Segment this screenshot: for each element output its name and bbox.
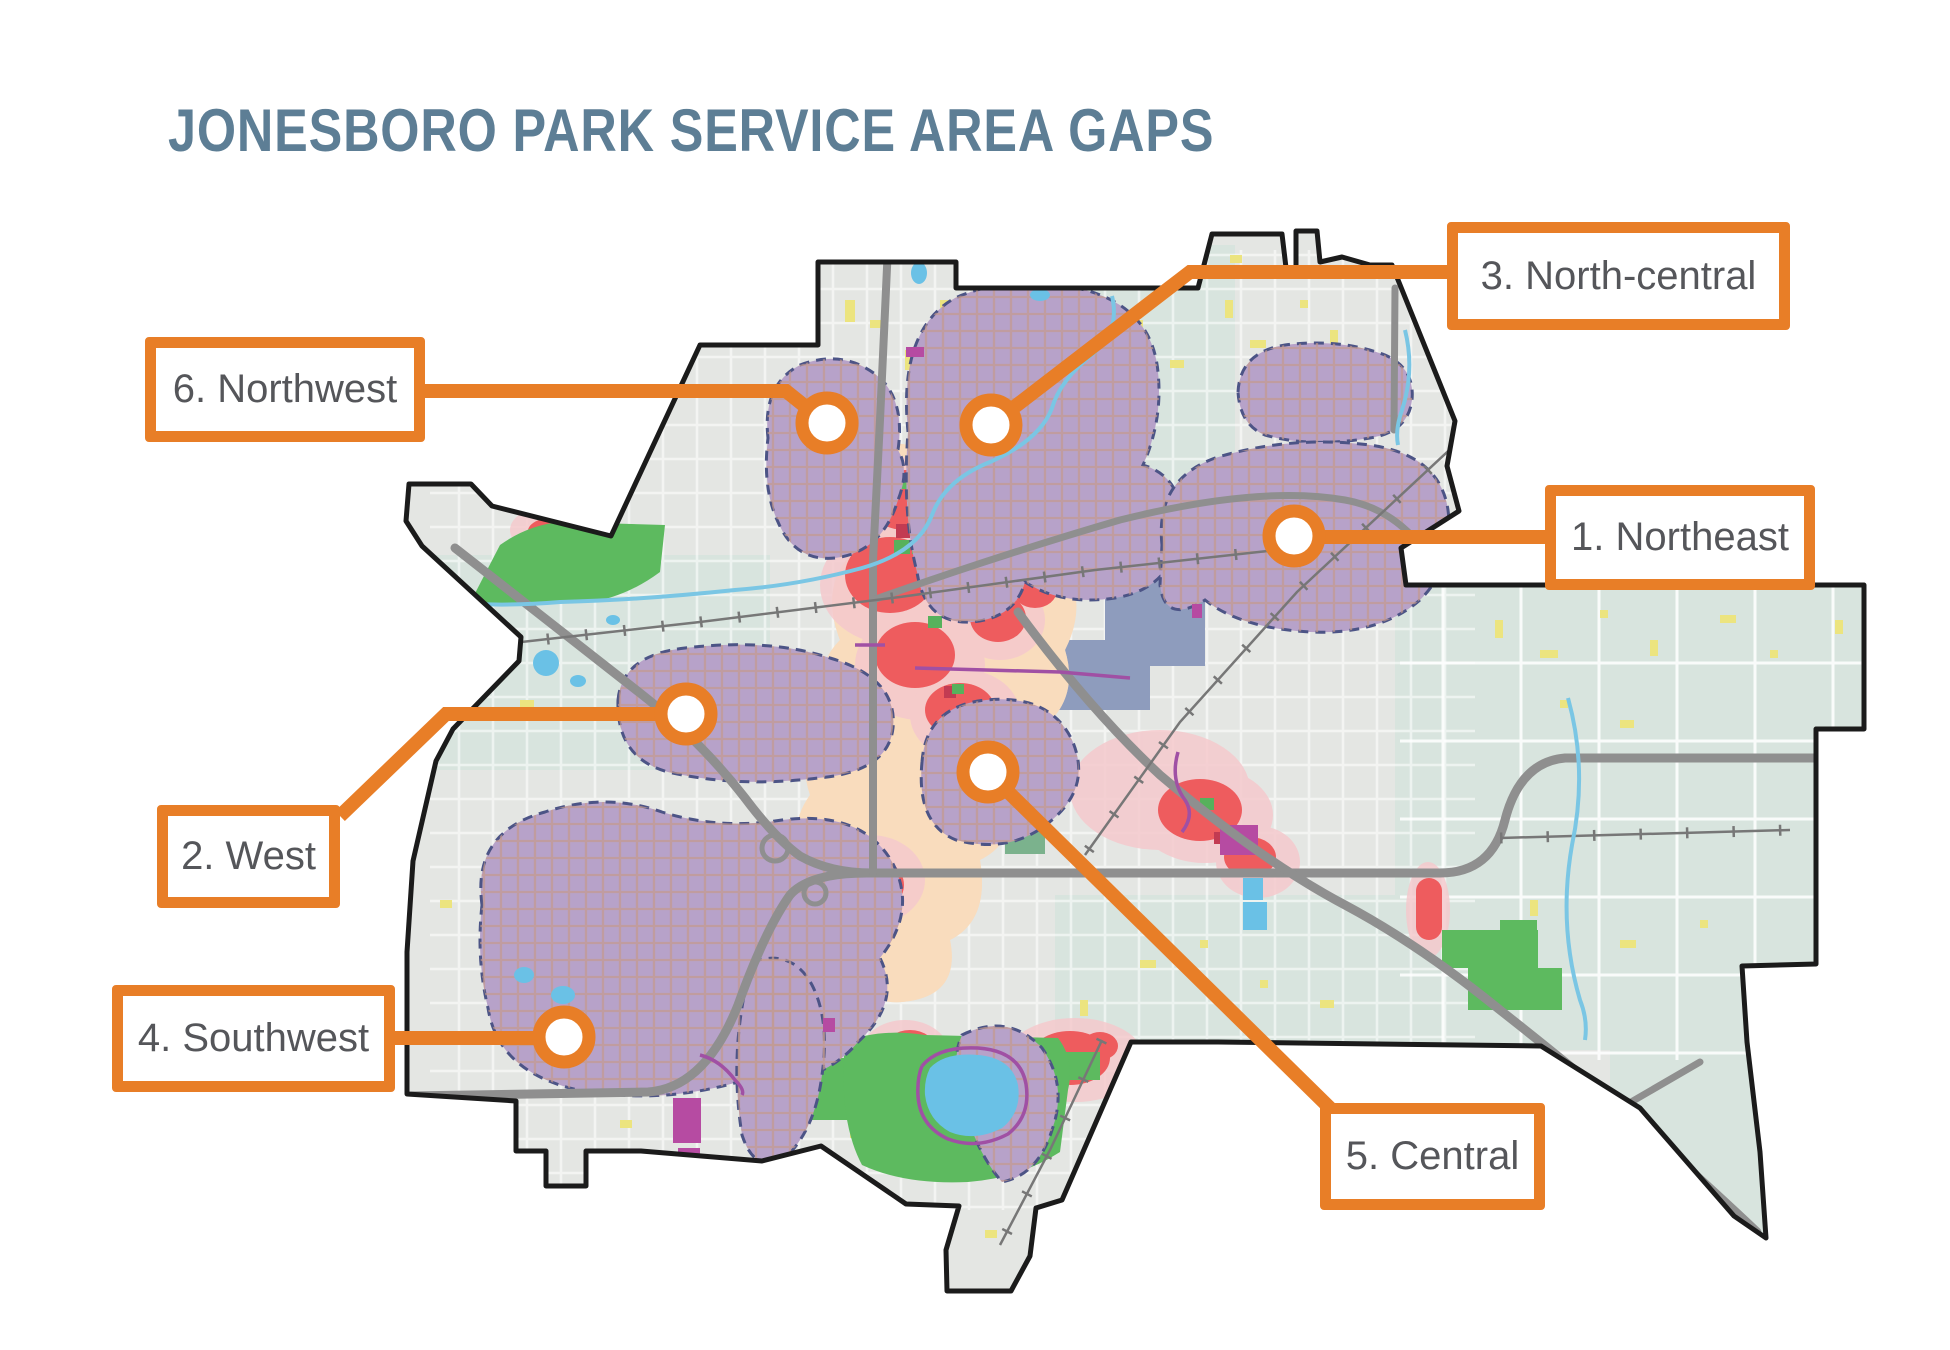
callout-northeast-label: 1. Northeast: [1571, 515, 1789, 560]
callout-northwest-label: 6. Northwest: [173, 367, 398, 412]
marker-west: [661, 689, 711, 739]
callout-southwest: 4. Southwest: [112, 985, 395, 1092]
callout-west: 2. West: [157, 805, 340, 908]
marker-central: [963, 747, 1013, 797]
callout-north-central: 3. North-central: [1447, 222, 1790, 330]
jonesboro-map: [0, 0, 1950, 1350]
marker-northwest: [802, 398, 852, 448]
marker-southwest: [539, 1012, 589, 1062]
callout-west-label: 2. West: [181, 834, 316, 879]
callout-northeast: 1. Northeast: [1545, 485, 1815, 590]
marker-north-central: [966, 400, 1016, 450]
callout-central-label: 5. Central: [1346, 1134, 1519, 1179]
callout-southwest-label: 4. Southwest: [138, 1016, 369, 1061]
infographic-page: JONESBORO PARK SERVICE AREA GAPS 3. Nort…: [0, 0, 1950, 1350]
park-lake: [925, 1055, 1019, 1137]
callout-central: 5. Central: [1320, 1103, 1545, 1210]
page-title: JONESBORO PARK SERVICE AREA GAPS: [168, 96, 1214, 165]
callout-northwest: 6. Northwest: [145, 337, 425, 442]
callout-north-central-label: 3. North-central: [1481, 254, 1757, 299]
marker-northeast: [1269, 511, 1319, 561]
